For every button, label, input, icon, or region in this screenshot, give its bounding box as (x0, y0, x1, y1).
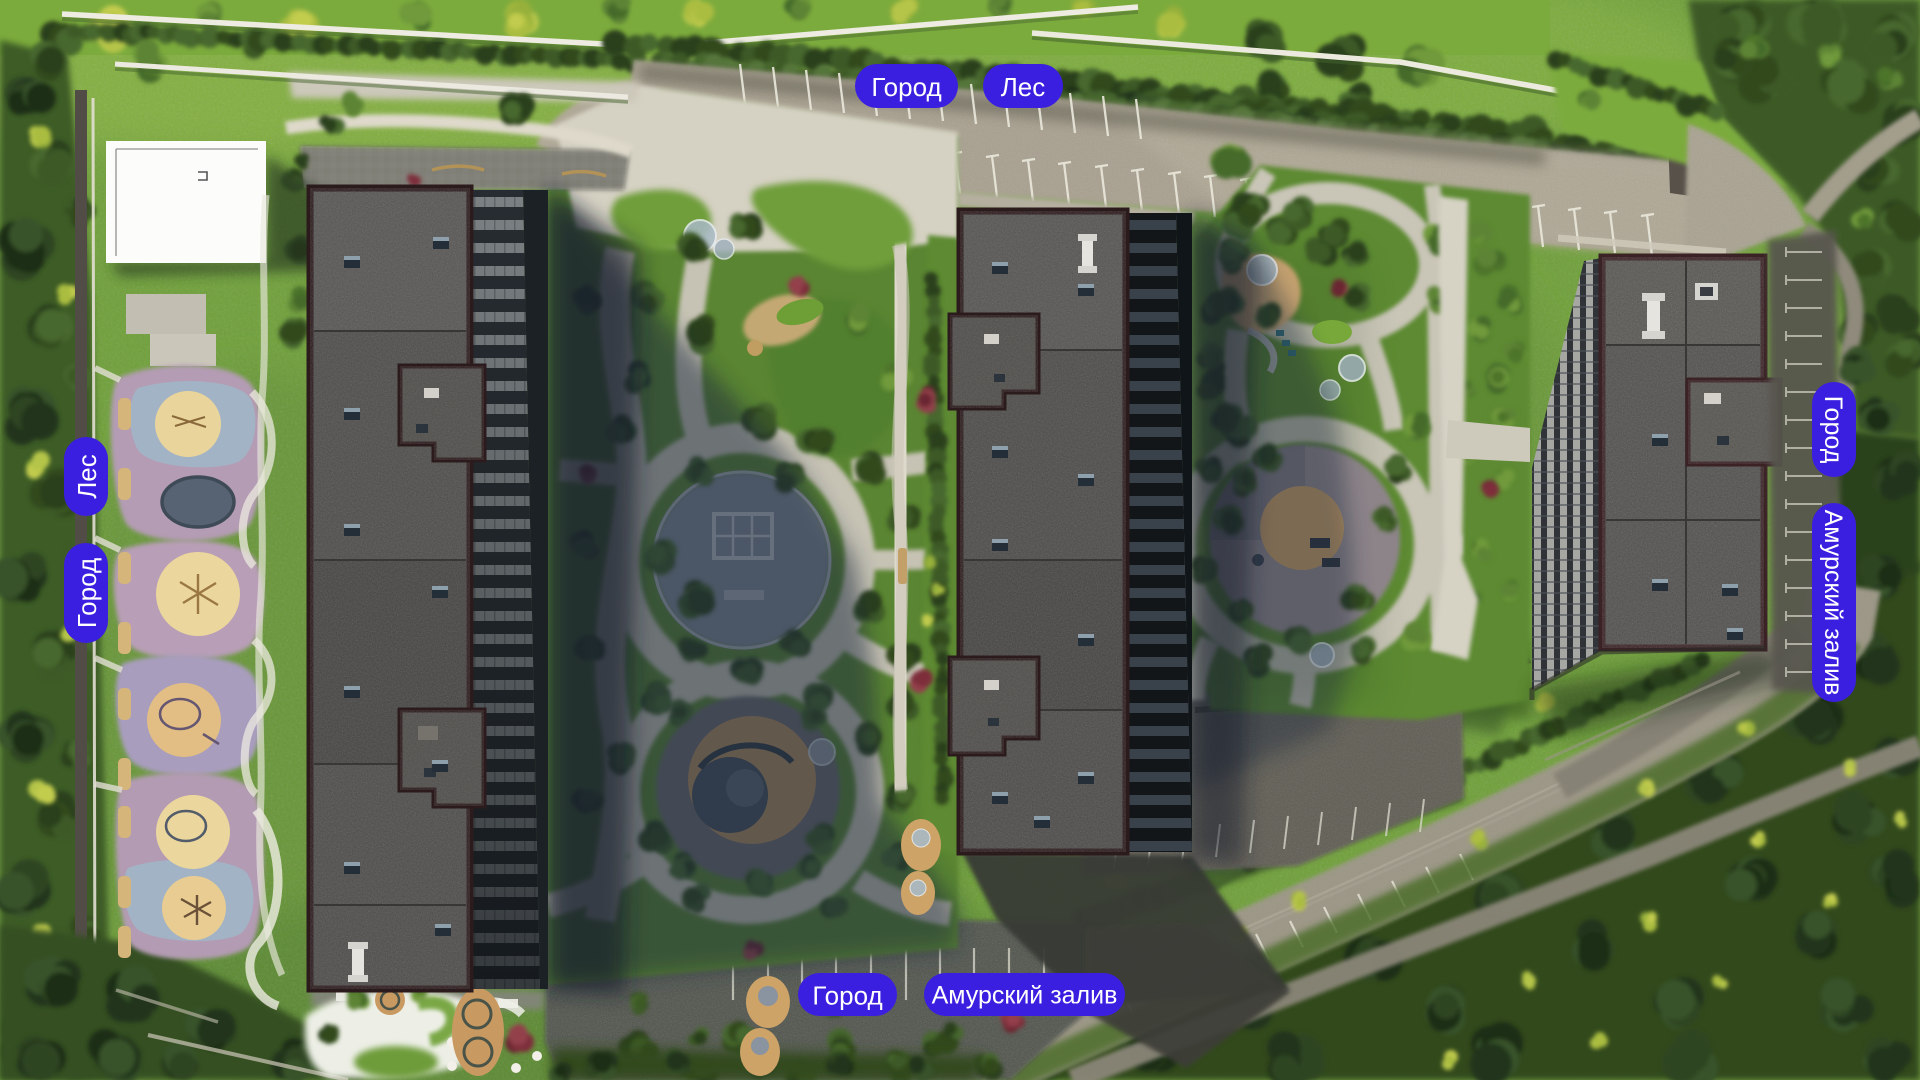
svg-text:Лес: Лес (1001, 72, 1046, 102)
svg-text:Город: Город (1819, 396, 1847, 464)
svg-text:Город: Город (72, 558, 102, 628)
svg-text:Город: Город (812, 981, 882, 1011)
svg-text:Амурский залив: Амурский залив (1819, 510, 1847, 696)
svg-text:Амурский залив: Амурский залив (932, 982, 1118, 1010)
svg-text:Город: Город (871, 72, 941, 102)
svg-text:Лес: Лес (72, 454, 102, 499)
